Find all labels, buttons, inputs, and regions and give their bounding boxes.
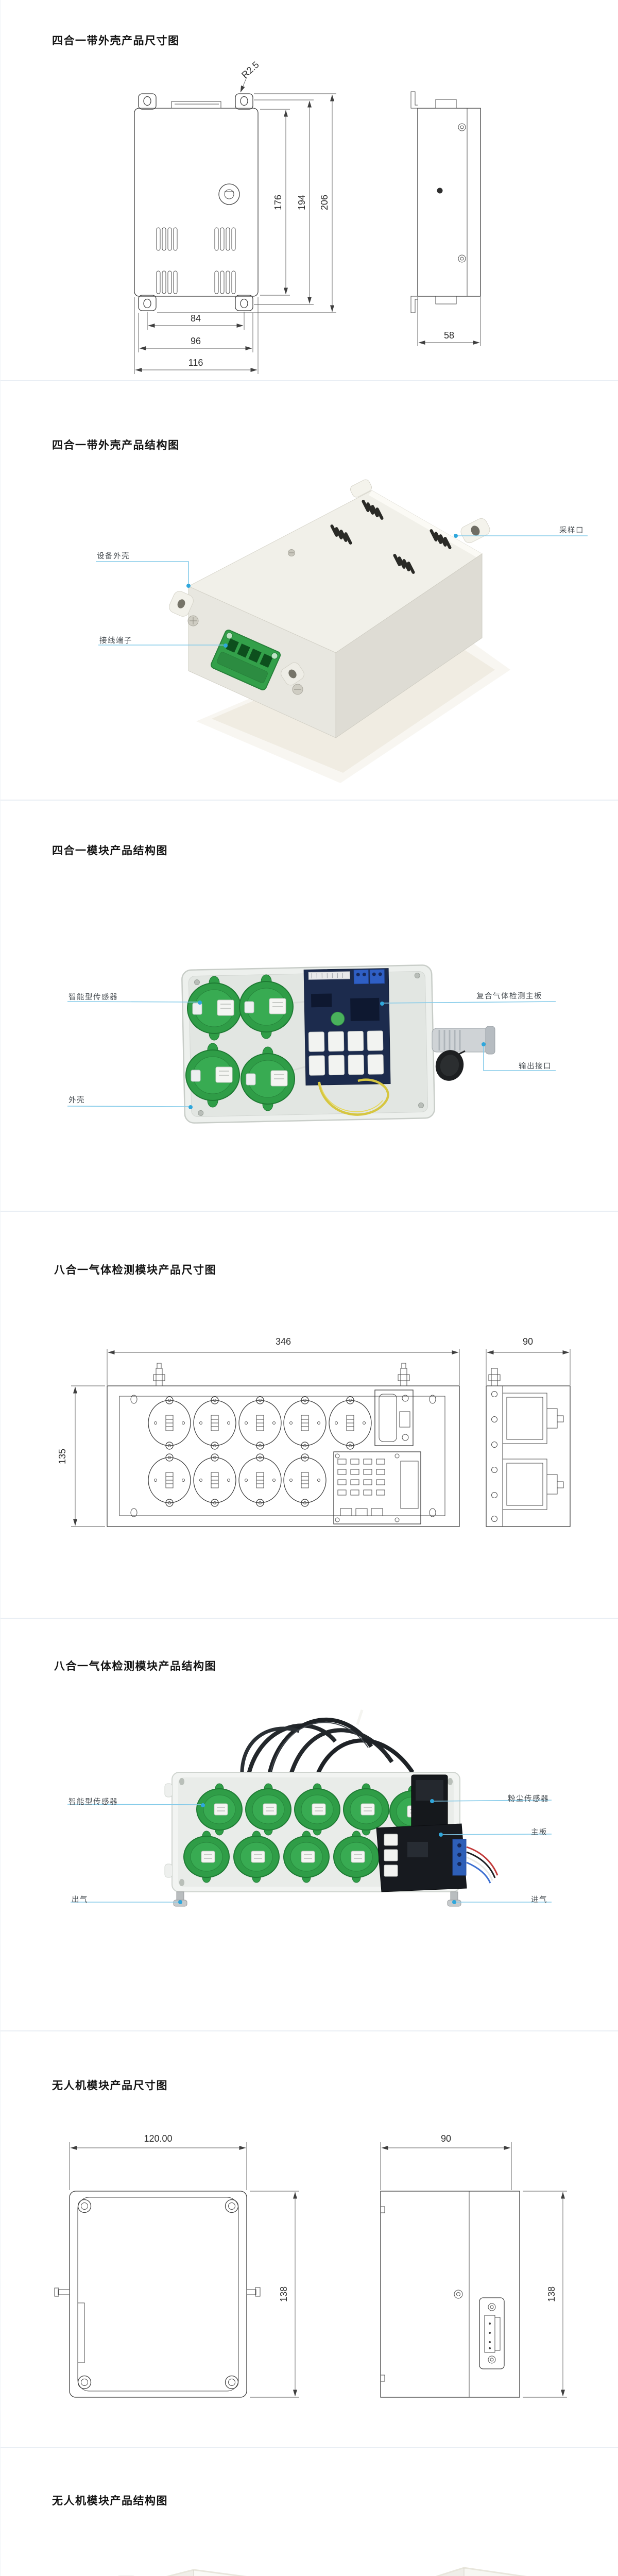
dim-84: 84 bbox=[191, 313, 201, 324]
callout-device-housing: 设备外壳 bbox=[97, 550, 130, 561]
cable-bundle bbox=[242, 1709, 413, 1783]
side-view-drone bbox=[381, 2191, 520, 2397]
dim-176: 176 bbox=[273, 195, 283, 210]
section-divider bbox=[1, 1618, 618, 1619]
mainboard bbox=[376, 1824, 497, 1892]
vertical-dimensions: 176 194 206 bbox=[157, 94, 336, 313]
callout-gas-mainboard: 复合气体检测主板 bbox=[476, 990, 542, 1001]
output-connector bbox=[432, 1026, 495, 1054]
dim-116: 116 bbox=[188, 358, 203, 368]
section-title-4in1-housing-structure: 四合一带外壳产品结构图 bbox=[52, 437, 180, 452]
drone-box-front bbox=[112, 2570, 287, 2576]
photo-8in1-module bbox=[67, 1709, 552, 1906]
dim-96: 96 bbox=[191, 336, 201, 346]
dim-drawing-drone: 120.00 138 9 bbox=[55, 2133, 567, 2397]
dim-138-front: 138 bbox=[279, 2286, 289, 2302]
section-divider bbox=[1, 2030, 618, 2031]
side-view-4in1: 58 bbox=[411, 92, 480, 346]
section-title-drone-dims: 无人机模块产品尺寸图 bbox=[52, 2077, 168, 2093]
section-title-8in1-structure: 八合一气体检测模块产品结构图 bbox=[54, 1658, 216, 1673]
section-divider bbox=[1, 2447, 618, 2448]
callout-wiring-terminal: 接线端子 bbox=[99, 635, 132, 646]
dim-120: 120.00 bbox=[144, 2133, 172, 2144]
callout-sampling-port: 采样口 bbox=[559, 524, 584, 535]
dim-135: 135 bbox=[57, 1449, 67, 1464]
dim-346: 346 bbox=[276, 1336, 291, 1347]
front-view-4in1 bbox=[134, 94, 258, 311]
section-title-4in1-housing-dims: 四合一带外壳产品尺寸图 bbox=[52, 32, 180, 48]
section-divider bbox=[1, 800, 618, 801]
front-view-drone bbox=[55, 2191, 260, 2397]
section-divider bbox=[1, 1211, 618, 1212]
page-artwork: R2.5 176 194 206 bbox=[1, 0, 618, 2576]
section-title-drone-structure: 无人机模块产品结构图 bbox=[52, 2493, 168, 2508]
product-spec-page: R2.5 176 194 206 bbox=[0, 0, 618, 2576]
pcb-outline bbox=[334, 1452, 421, 1524]
connector-cap bbox=[432, 1047, 467, 1084]
callout-mainboard: 主板 bbox=[531, 1826, 547, 1837]
callout-dust-sensor: 粉尘传感器 bbox=[508, 1793, 549, 1804]
callout-shell: 外壳 bbox=[68, 1094, 85, 1105]
photo-4in1-module bbox=[67, 965, 556, 1123]
section-title-8in1-dims: 八合一气体检测模块产品尺寸图 bbox=[54, 1262, 216, 1277]
callout-output-port: 输出接口 bbox=[519, 1060, 552, 1071]
pump-block bbox=[375, 1390, 413, 1446]
dim-drawing-8in1: 346 90 135 bbox=[57, 1336, 570, 1527]
dim-194: 194 bbox=[297, 195, 307, 210]
side-connector bbox=[479, 2298, 504, 2369]
photo-drone-module bbox=[41, 2568, 598, 2576]
dim-58: 58 bbox=[444, 330, 454, 341]
vent-grid-icon bbox=[157, 228, 235, 294]
dim-drawing-4in1-housing: R2.5 176 194 206 bbox=[134, 59, 480, 374]
dim-90: 90 bbox=[523, 1336, 533, 1347]
section-divider bbox=[1, 380, 618, 381]
front-view-8in1 bbox=[107, 1363, 459, 1527]
side-view-8in1 bbox=[486, 1368, 570, 1527]
callout-smart-sensor-8in1: 智能型传感器 bbox=[68, 1796, 118, 1807]
callout-air-outlet-8in1: 出气 bbox=[72, 1894, 88, 1905]
photo-4in1-housing bbox=[96, 478, 588, 783]
radius-callout: R2.5 bbox=[239, 59, 261, 92]
tube-fitting-icon bbox=[398, 1363, 409, 1386]
callout-smart-sensor: 智能型传感器 bbox=[68, 991, 118, 1002]
tube-fitting-icon bbox=[489, 1368, 500, 1386]
dim-138-side: 138 bbox=[546, 2286, 557, 2302]
dim-206: 206 bbox=[319, 195, 330, 210]
dim-90-side: 90 bbox=[441, 2133, 451, 2144]
callout-air-inlet-8in1: 进气 bbox=[531, 1894, 547, 1905]
drone-box-rear bbox=[419, 2568, 579, 2576]
gas-detection-mainboard bbox=[304, 969, 390, 1086]
dim-radius: R2.5 bbox=[239, 59, 261, 80]
section-title-4in1-module-structure: 四合一模块产品结构图 bbox=[52, 842, 168, 858]
tube-fitting-icon bbox=[153, 1363, 165, 1386]
horizontal-dimensions: 84 96 116 bbox=[134, 297, 258, 374]
mounting-tab bbox=[459, 517, 492, 545]
